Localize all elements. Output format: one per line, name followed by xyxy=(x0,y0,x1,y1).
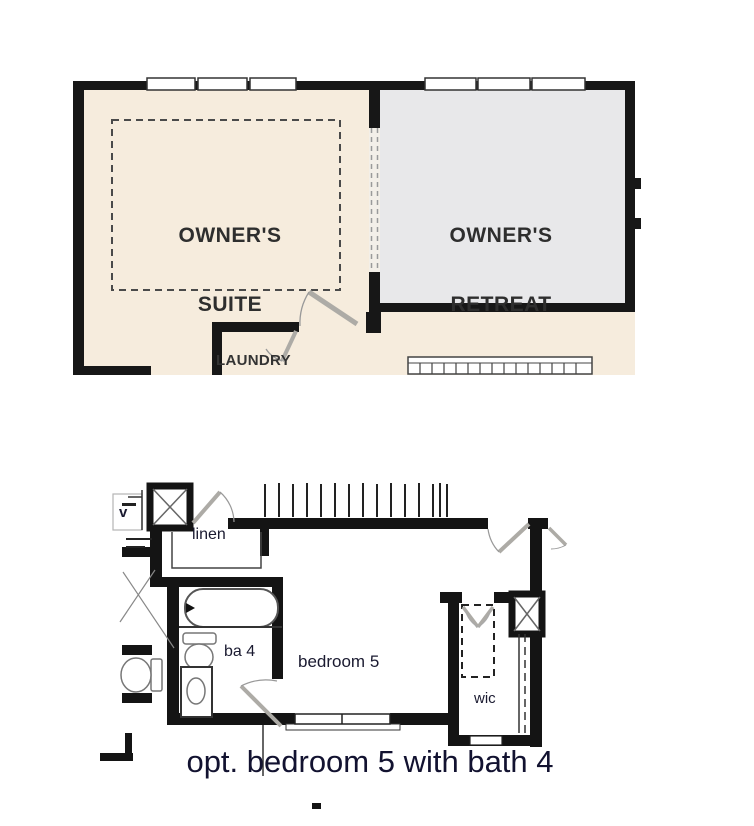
exterior-door xyxy=(549,528,566,549)
laundry-label: LAUNDRY xyxy=(216,352,291,369)
bathtub xyxy=(179,589,282,627)
chase-box xyxy=(150,486,190,528)
owners-retreat-label-line1: OWNER'S xyxy=(420,224,582,247)
owners-retreat-label: OWNER'S RETREAT xyxy=(420,178,582,362)
toilet xyxy=(121,658,162,692)
owners-suite-label-line2: SUITE xyxy=(150,293,310,316)
owners-suite-label-line1: OWNER'S xyxy=(150,224,310,247)
suite-retreat-opening xyxy=(369,128,380,272)
bedroom5-label: bedroom 5 xyxy=(298,652,379,672)
wic-double-doors xyxy=(463,607,493,627)
toilet xyxy=(183,633,216,670)
wic-label: wic xyxy=(474,690,496,707)
suite-windows xyxy=(147,78,296,90)
bath4-label: ba 4 xyxy=(224,643,255,661)
owners-suite-label: OWNER'S SUITE xyxy=(150,178,310,362)
sink-vanity xyxy=(181,667,212,717)
wall-bump xyxy=(635,218,641,229)
bedroom-door xyxy=(488,524,529,552)
linen-door xyxy=(193,492,234,523)
linen-label: linen xyxy=(192,526,226,544)
wic-dashed-area xyxy=(462,605,494,677)
chase-box xyxy=(512,594,542,634)
plan-caption: opt. bedroom 5 with bath 4 xyxy=(140,744,600,780)
rail-hatch xyxy=(265,483,447,517)
vent-label: v xyxy=(119,504,127,521)
caption-dot xyxy=(312,803,321,809)
retreat-windows xyxy=(425,78,585,90)
floor-plan-sheet: OWNER'S SUITE OWNER'S RETREAT LAUNDRY li… xyxy=(0,0,754,826)
closet-rod xyxy=(519,634,525,733)
bedroom-window xyxy=(286,714,400,730)
owners-retreat-label-line2: RETREAT xyxy=(420,293,582,316)
wall-bump xyxy=(635,178,641,189)
plan-drawing xyxy=(0,0,754,826)
